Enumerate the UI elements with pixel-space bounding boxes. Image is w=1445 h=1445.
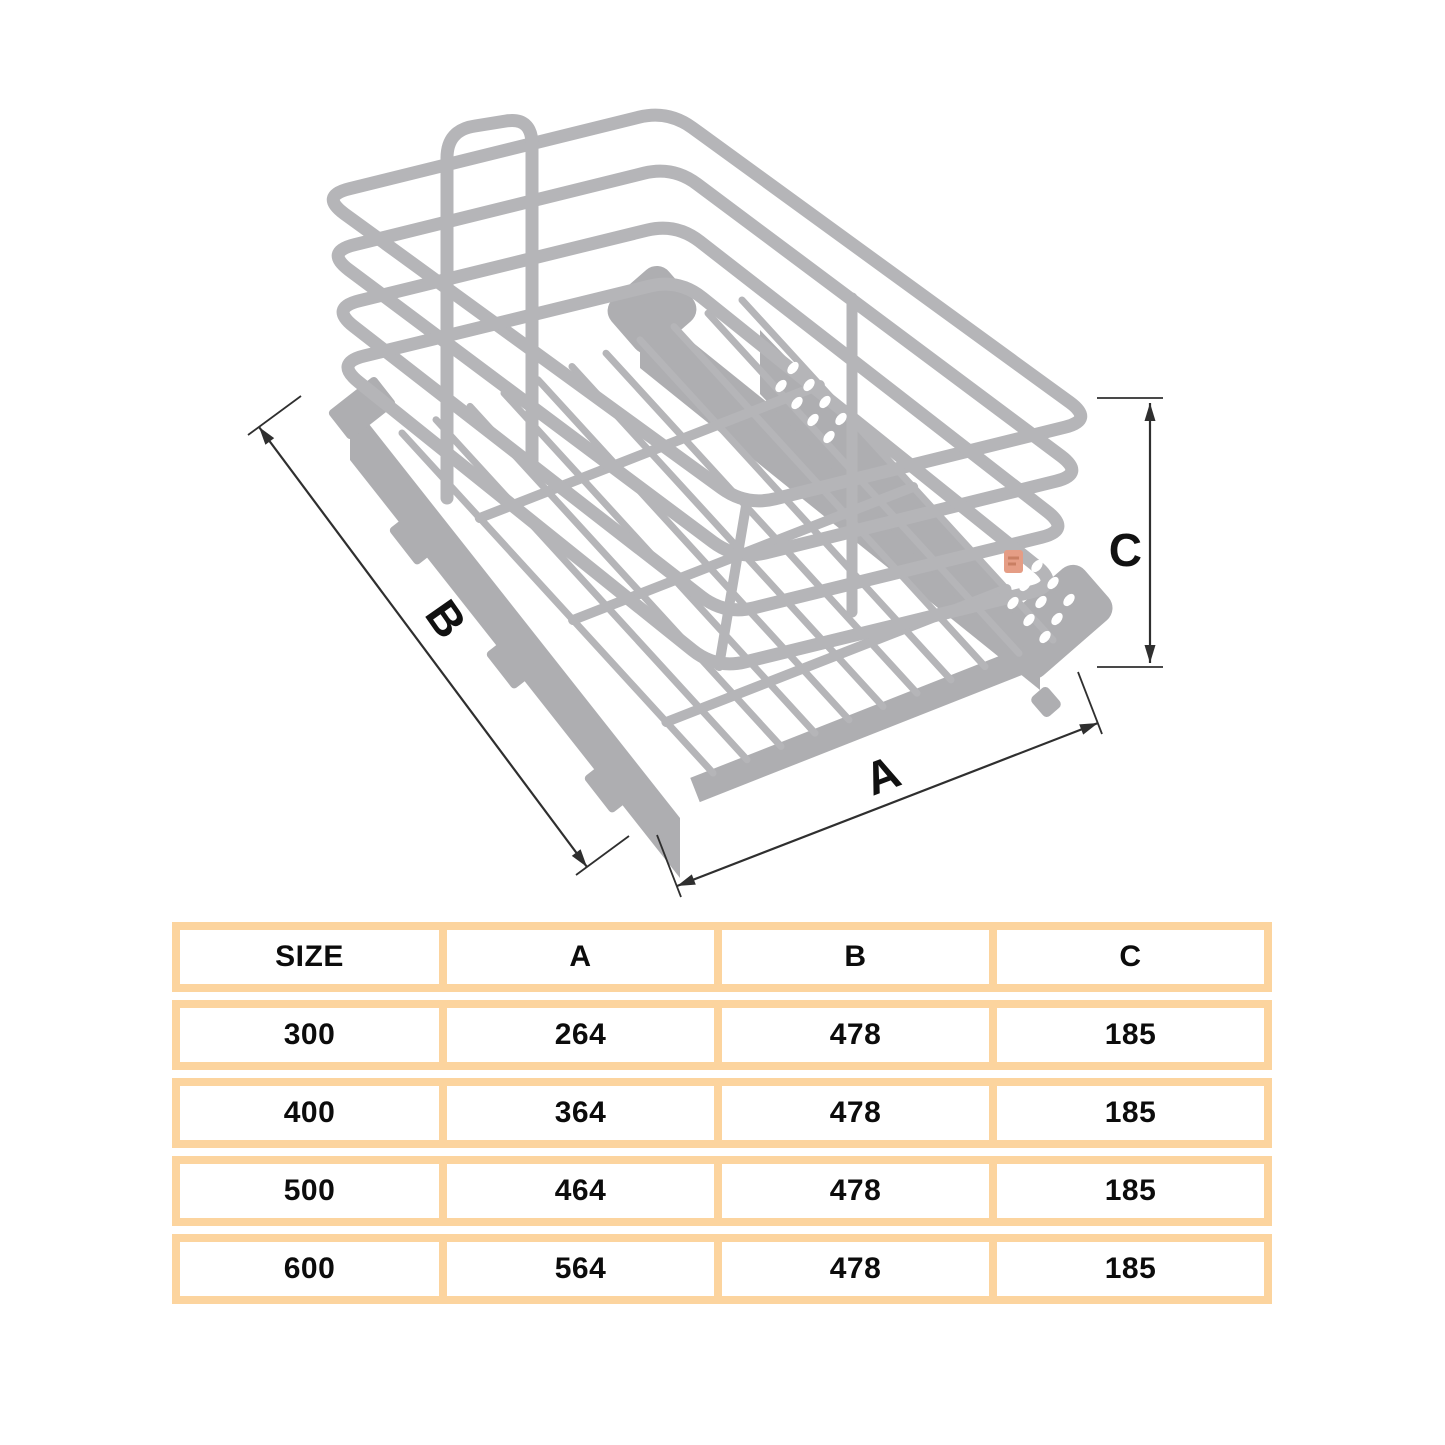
table-row: 500 464 478 185	[172, 1156, 1272, 1226]
header-cell-c: C	[997, 922, 1272, 992]
size-table: SIZE A B C 300 264 478 185 400 364 478 1…	[172, 922, 1272, 1304]
cell-b: 478	[722, 1156, 997, 1226]
basket-illustration: B A C	[0, 0, 1445, 920]
header-cell-a: A	[447, 922, 722, 992]
cell-a: 464	[447, 1156, 722, 1226]
cell-b: 478	[722, 1234, 997, 1304]
cell-a: 364	[447, 1078, 722, 1148]
table-header-row: SIZE A B C	[172, 922, 1272, 992]
product-spec-sheet: B A C SIZE A B C 300 264 478 185 400 364…	[0, 0, 1445, 1445]
cell-c: 185	[997, 1156, 1272, 1226]
header-cell-b: B	[722, 922, 997, 992]
table-row: 600 564 478 185	[172, 1234, 1272, 1304]
cell-size: 400	[172, 1078, 447, 1148]
cell-a: 564	[447, 1234, 722, 1304]
cell-b: 478	[722, 1000, 997, 1070]
cell-size: 500	[172, 1156, 447, 1226]
cell-size: 600	[172, 1234, 447, 1304]
header-cell-size: SIZE	[172, 922, 447, 992]
table-row: 300 264 478 185	[172, 1000, 1272, 1070]
cell-c: 185	[997, 1000, 1272, 1070]
table-row: 400 364 478 185	[172, 1078, 1272, 1148]
dimension-label-height: C	[1109, 524, 1142, 576]
cell-b: 478	[722, 1078, 997, 1148]
dimension-label-width: A	[857, 745, 907, 805]
cell-size: 300	[172, 1000, 447, 1070]
brand-logo-sticker	[1004, 550, 1023, 573]
cell-a: 264	[447, 1000, 722, 1070]
cell-c: 185	[997, 1234, 1272, 1304]
cell-c: 185	[997, 1078, 1272, 1148]
